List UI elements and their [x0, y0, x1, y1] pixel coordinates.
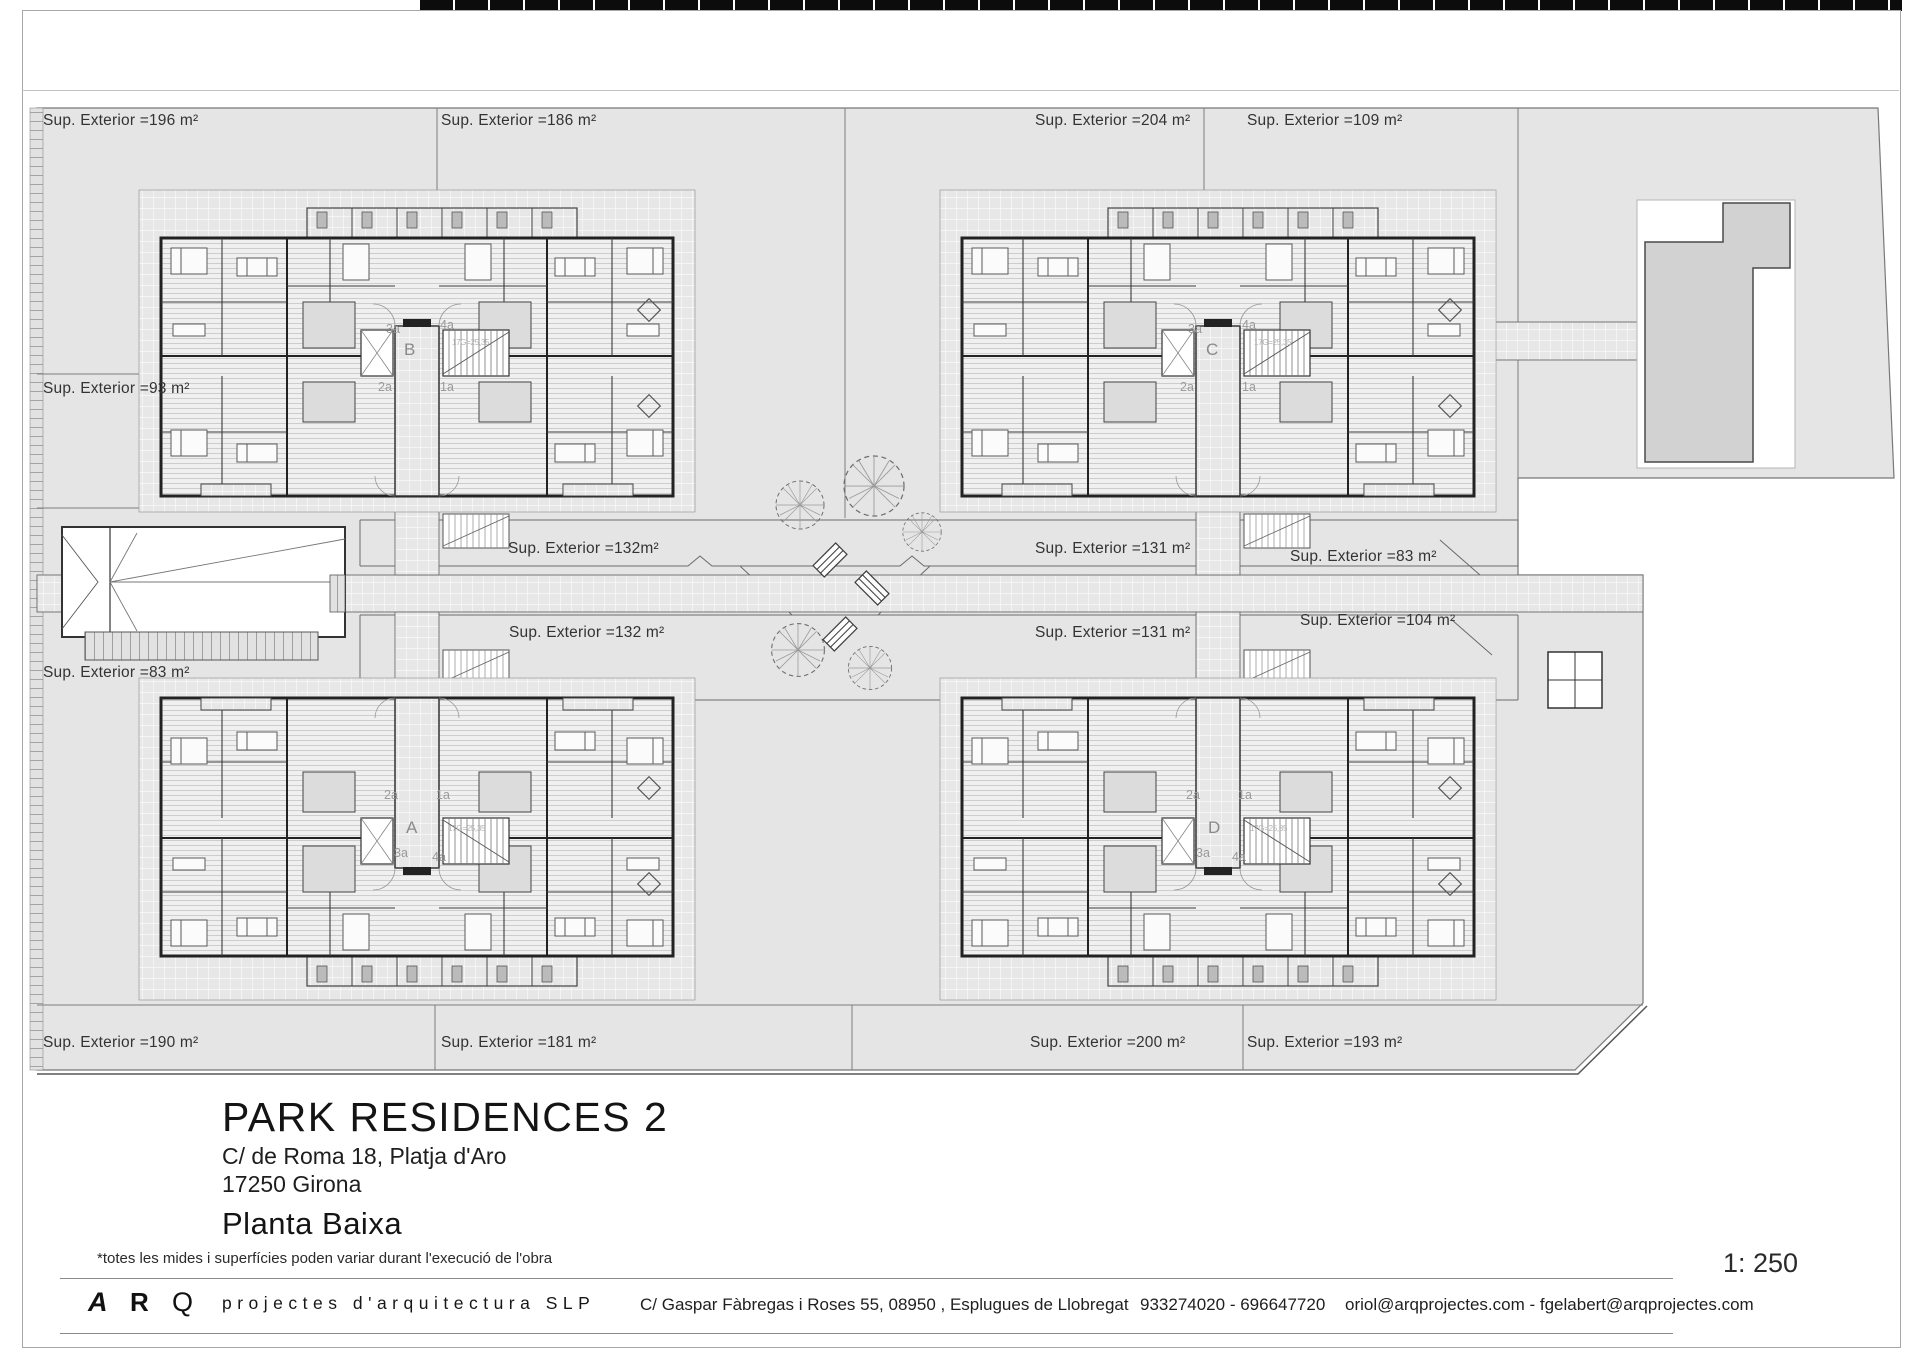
unit-label: 2a [378, 380, 392, 394]
sup-exterior-label: Sup. Exterior =83 m² [1290, 548, 1437, 566]
studio-name: projectes d'arquitectura SLP [222, 1293, 595, 1314]
logo-letter-q: Q [172, 1287, 193, 1318]
logo-letter-r: R [130, 1287, 149, 1318]
sup-exterior-label: Sup. Exterior =131 m² [1035, 540, 1190, 558]
unit-label: 1a [1238, 788, 1252, 802]
project-city: 17250 Girona [222, 1171, 361, 1198]
unit-label: 2a [1180, 380, 1194, 394]
sup-exterior-label: Sup. Exterior =93 m² [43, 380, 190, 398]
unit-label: 3a [386, 322, 400, 336]
sup-exterior-label: Sup. Exterior =193 m² [1247, 1034, 1402, 1052]
building-d [962, 698, 1474, 986]
sup-exterior-label: Sup. Exterior =132m² [508, 540, 659, 558]
sup-exterior-label: Sup. Exterior =181 m² [441, 1034, 596, 1052]
stair-note: 17G=25,35 [1250, 824, 1287, 833]
footer-bar: A R Q projectes d'arquitectura SLP C/ Ga… [60, 1278, 1673, 1334]
garage-structure [62, 527, 345, 660]
sup-exterior-label: Sup. Exterior =200 m² [1030, 1034, 1185, 1052]
building-b [161, 208, 673, 496]
unit-label: 1a [436, 788, 450, 802]
sup-exterior-label: Sup. Exterior =83 m² [43, 664, 190, 682]
building-letter: D [1208, 818, 1220, 838]
drawing-sheet: Sup. Exterior =196 m² Sup. Exterior =186… [0, 0, 1920, 1358]
unit-label: 2a [384, 788, 398, 802]
utility-box [1548, 652, 1602, 708]
project-address: C/ de Roma 18, Platja d'Aro [222, 1143, 506, 1170]
sup-exterior-label: Sup. Exterior =196 m² [43, 112, 198, 130]
plan-name: Planta Baixa [222, 1206, 402, 1242]
unit-label: 1a [1242, 380, 1256, 394]
unit-label: 1a [440, 380, 454, 394]
logo-letter-a: A [88, 1287, 108, 1318]
unit-label: 3a [394, 846, 408, 860]
stair-note: 17G=25,35 [452, 338, 489, 347]
sup-exterior-label: Sup. Exterior =190 m² [43, 1034, 198, 1052]
sup-exterior-label: Sup. Exterior =131 m² [1035, 624, 1190, 642]
building-letter: A [406, 818, 417, 838]
unit-label: 3a [1188, 322, 1202, 336]
building-letter: C [1206, 340, 1218, 360]
unit-label: 4a [440, 318, 454, 332]
unit-label: 4a [1242, 318, 1256, 332]
unit-label: 3a [1196, 846, 1210, 860]
sup-exterior-label: Sup. Exterior =104 m² [1300, 612, 1455, 630]
stair-note: 17G=25,35 [448, 824, 485, 833]
unit-label: 2a [1186, 788, 1200, 802]
sup-exterior-label: Sup. Exterior =109 m² [1247, 112, 1402, 130]
pool [1637, 200, 1795, 468]
sup-exterior-label: Sup. Exterior =204 m² [1035, 112, 1190, 130]
building-letter: B [404, 340, 415, 360]
studio-address: C/ Gaspar Fàbregas i Roses 55, 08950 , E… [640, 1295, 1129, 1315]
sup-exterior-label: Sup. Exterior =132 m² [509, 624, 664, 642]
disclaimer-note: *totes les mides i superfícies poden var… [97, 1250, 552, 1267]
scale-label: 1: 250 [1723, 1248, 1798, 1279]
stair-note: 17G=25,35 [1254, 338, 1291, 347]
unit-label: 4a [432, 850, 446, 864]
sup-exterior-label: Sup. Exterior =186 m² [441, 112, 596, 130]
unit-label: 4a [1232, 850, 1246, 864]
building-a [161, 698, 673, 986]
studio-phones: 933274020 - 696647720 [1140, 1295, 1325, 1315]
project-title: PARK RESIDENCES 2 [222, 1094, 668, 1141]
studio-emails: oriol@arqprojectes.com - fgelabert@arqpr… [1345, 1295, 1754, 1315]
